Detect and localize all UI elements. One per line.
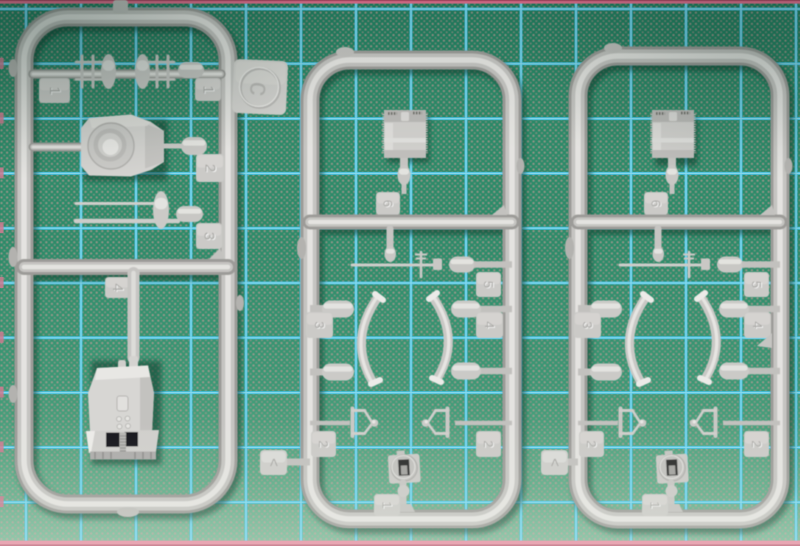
svg-text:4: 4 bbox=[750, 321, 765, 328]
svg-text:5: 5 bbox=[481, 281, 496, 288]
svg-text:3: 3 bbox=[201, 232, 218, 240]
svg-text:3: 3 bbox=[580, 321, 595, 328]
svg-text:5: 5 bbox=[749, 281, 764, 288]
svg-text:2: 2 bbox=[202, 164, 219, 172]
svg-text:4: 4 bbox=[482, 321, 497, 328]
svg-text:4: 4 bbox=[109, 283, 126, 291]
svg-text:3: 3 bbox=[312, 321, 327, 328]
svg-text:6: 6 bbox=[649, 200, 664, 207]
svg-text:6: 6 bbox=[381, 200, 396, 207]
